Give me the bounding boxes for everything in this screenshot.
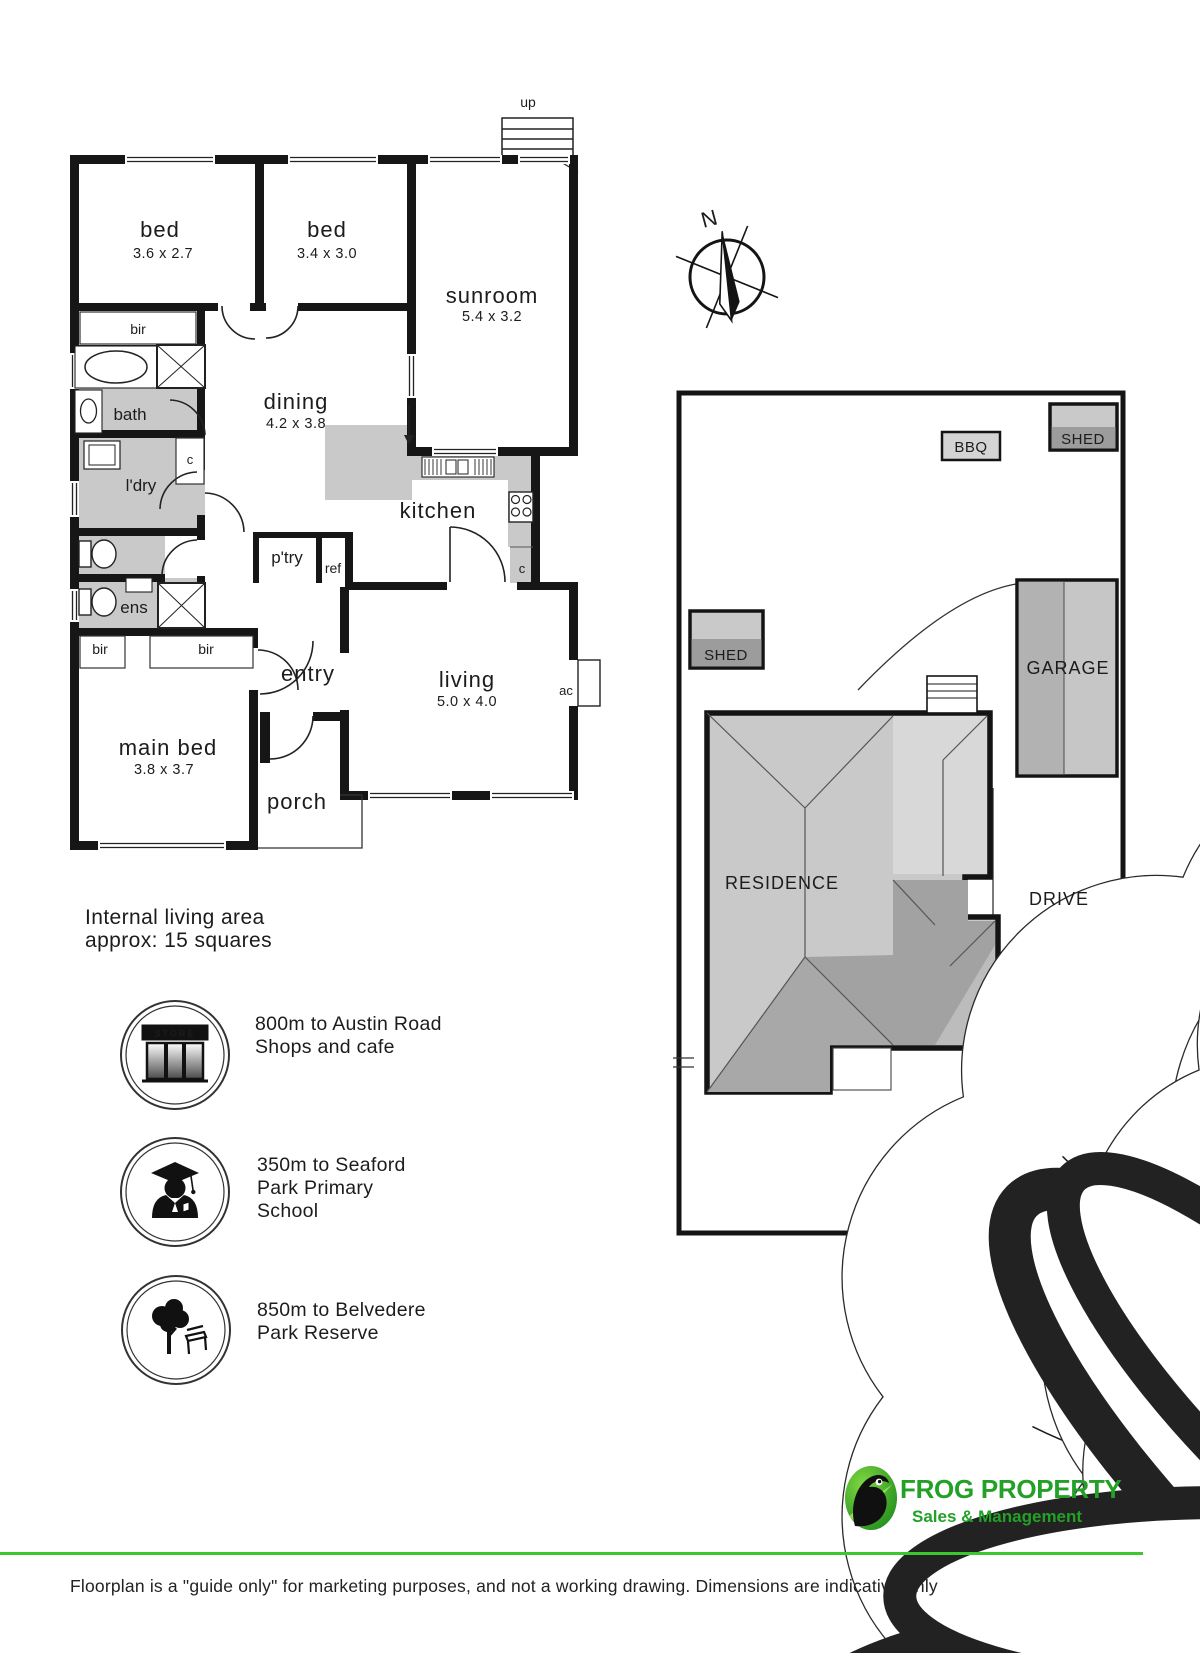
up-label: up [520, 94, 536, 110]
closet-label: c [187, 452, 194, 467]
graduate-icon [118, 1135, 232, 1249]
north-arrow-icon [655, 205, 798, 348]
toilet-icon [79, 541, 91, 567]
drive-label: DRIVE [1029, 889, 1089, 909]
sunroom-dims: 5.4 x 3.2 [462, 309, 522, 325]
dining-dims: 4.2 x 3.8 [266, 416, 326, 432]
amenity-line: Park Reserve [257, 1322, 426, 1345]
brand-name: FROG PROPERTY [900, 1474, 1121, 1505]
amenity-line: Park Primary [257, 1177, 406, 1200]
disclaimer-text: Floorplan is a "guide only" for marketin… [70, 1576, 938, 1597]
ens-vanity-icon [126, 578, 152, 592]
bed1-label: bed [140, 217, 180, 242]
bed1-dims: 3.6 x 2.7 [133, 246, 193, 262]
entry-label: entry [281, 661, 335, 686]
plan-drawing: up bed 3.6 x 2.7 bed 3.4 x 3.0 sunroom 5… [0, 0, 1200, 1653]
sunroom-label: sunroom [446, 283, 539, 308]
amenity-line: 850m to Belvedere [257, 1299, 426, 1322]
porch-label: porch [267, 789, 327, 814]
garage [1017, 580, 1117, 776]
bbq-label: BBQ [954, 439, 987, 456]
bir-label: bir [92, 641, 108, 657]
amenity-line: 350m to Seaford [257, 1154, 406, 1177]
driveway-curve [858, 584, 1016, 690]
main-bed-label: main bed [119, 735, 218, 760]
park-distance-note: 850m to Belvedere Park Reserve [257, 1299, 426, 1345]
chimney-icon [927, 676, 977, 713]
ac-label: ac [559, 683, 573, 698]
main-bed-dims: 3.8 x 3.7 [134, 762, 194, 778]
site-plan: N BBQ SHED SHED GARAGE RESIDENCE DRIVE [655, 205, 1200, 1653]
internal-area-note: Internal living area approx: 15 squares [85, 906, 272, 952]
pantry-label: p'try [271, 548, 303, 567]
bed2-label: bed [307, 217, 347, 242]
north-label: N [698, 205, 720, 233]
dining-label: dining [264, 389, 329, 414]
footer-divider [0, 1552, 1143, 1555]
ens-label: ens [120, 598, 147, 617]
floorplan: up bed 3.6 x 2.7 bed 3.4 x 3.0 sunroom 5… [70, 94, 600, 850]
garage-label: GARAGE [1026, 658, 1109, 678]
school-distance-note: 350m to Seaford Park Primary School [257, 1154, 406, 1223]
shed-label: SHED [1061, 431, 1105, 448]
store-icon: STORE [118, 998, 232, 1112]
bed2-dims: 3.4 x 3.0 [297, 246, 357, 262]
bath-label: bath [113, 405, 146, 424]
amenity-line: Shops and cafe [255, 1036, 442, 1059]
amenity-line: School [257, 1200, 406, 1223]
store-distance-note: 800m to Austin Road Shops and cafe [255, 1013, 442, 1059]
ac-unit [569, 660, 600, 706]
shed-label: SHED [704, 647, 748, 664]
bir-label: bir [198, 641, 214, 657]
rear-step [833, 1048, 891, 1090]
residence-label: RESIDENCE [725, 873, 839, 893]
store-sign-label: STORE [155, 1029, 196, 1039]
laundry-label: l'dry [126, 476, 157, 495]
brand-tagline: Sales & Management [912, 1507, 1082, 1527]
kitchen-bench [325, 425, 412, 500]
frog-logo-icon [843, 1463, 899, 1538]
living-dims: 5.0 x 4.0 [437, 694, 497, 710]
ref-label: ref [325, 560, 341, 576]
floorplan-page: up bed 3.6 x 2.7 bed 3.4 x 3.0 sunroom 5… [0, 0, 1200, 1653]
closet-label: c [519, 561, 526, 576]
park-tree-icon [119, 1273, 233, 1387]
toilet-icon [79, 589, 91, 615]
amenity-line: 800m to Austin Road [255, 1013, 442, 1036]
area-line: Internal living area [85, 906, 272, 929]
bir-label: bir [130, 321, 146, 337]
living-label: living [439, 667, 495, 692]
area-line: approx: 15 squares [85, 929, 272, 952]
kitchen-label: kitchen [400, 498, 477, 523]
